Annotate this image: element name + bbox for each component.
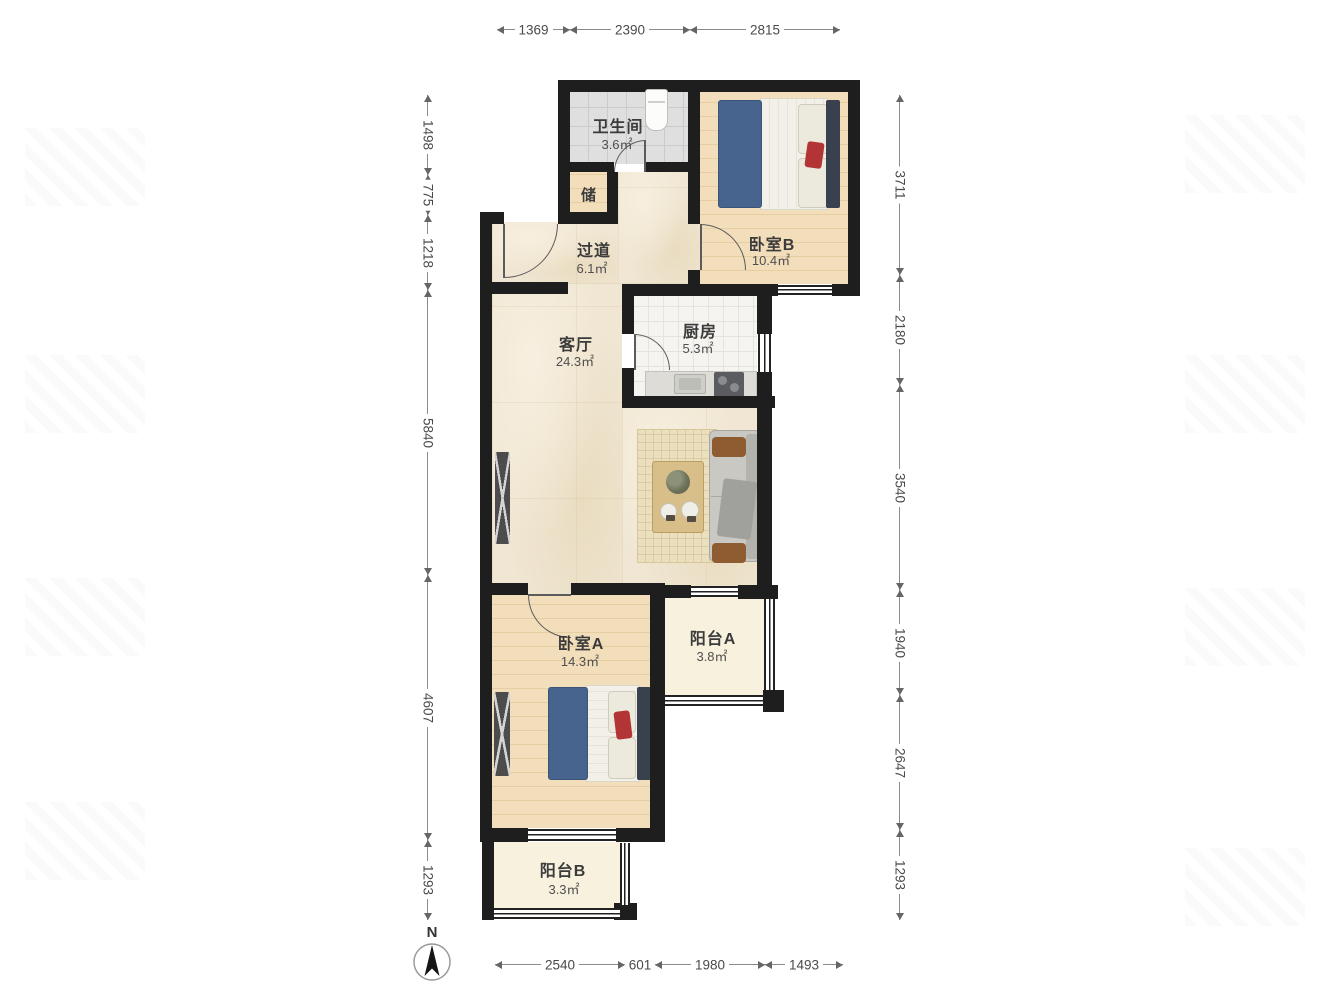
room-label-storage: 储: [581, 184, 597, 205]
room-label-balcony-b: 阳台B: [540, 857, 587, 881]
dimension-value: 1498: [421, 116, 436, 154]
wall: [650, 583, 665, 842]
wall: [558, 212, 618, 224]
window: [620, 843, 630, 905]
floor-plan: 卫生间 3.6㎡ 储 过道 6.1㎡ 卧室B 10.4㎡ 厨房 5.3㎡ 客厅 …: [0, 0, 1333, 1000]
room-area-living-room: 24.3㎡: [556, 351, 594, 370]
dimension-value: 2180: [893, 311, 908, 349]
entry-door-leaf: [503, 224, 505, 278]
dimension-bottom: 1980: [655, 959, 765, 971]
dimension-top: 2815: [690, 24, 840, 36]
wall: [622, 284, 690, 296]
bed-b-headboard: [826, 100, 840, 208]
bathroom-door-leaf: [644, 140, 646, 172]
watermark: [1185, 588, 1305, 666]
dimension-left: 4607: [422, 575, 434, 840]
wall: [757, 296, 772, 334]
stove: [714, 372, 744, 397]
room-area-balcony-b: 3.3㎡: [548, 879, 579, 898]
dimension-bottom: 1493: [765, 959, 843, 971]
room-area-bedroom-a: 14.3㎡: [561, 651, 599, 670]
wall: [688, 284, 778, 296]
window: [778, 285, 832, 295]
window: [764, 599, 775, 690]
watermark: [1185, 115, 1305, 193]
dimension-value: 4607: [421, 688, 436, 726]
wall: [622, 296, 634, 334]
watermark: [25, 355, 145, 433]
sofa-pillow: [712, 543, 746, 563]
dimension-value: 2540: [541, 958, 579, 973]
bed-a-pillow: [608, 737, 636, 779]
dimension-top: 1369: [497, 24, 570, 36]
tv-living-room: [495, 452, 510, 544]
wall: [480, 828, 528, 842]
dimension-left: 775: [422, 175, 434, 215]
bed-b-cushion: [804, 141, 824, 169]
dimension-value: 601: [625, 958, 656, 973]
wall: [558, 80, 860, 92]
dimension-value: 1293: [893, 856, 908, 894]
wall: [480, 583, 492, 842]
sofa-pillow: [712, 437, 746, 457]
window: [494, 908, 620, 919]
dimension-bottom: 2540: [495, 959, 625, 971]
wall: [757, 372, 772, 597]
table-item: [687, 516, 696, 522]
dimension-value: 1940: [893, 623, 908, 661]
north-indicator: N: [412, 942, 452, 982]
wall: [482, 842, 494, 920]
kitchen-door-leaf: [634, 334, 636, 370]
wall: [480, 212, 492, 595]
dimension-bottom: 601: [625, 959, 655, 971]
room-area-bedroom-b: 10.4㎡: [752, 250, 790, 269]
dimension-right: 3711: [894, 95, 906, 275]
bed-b-duvet: [718, 100, 762, 208]
dimension-right: 1940: [894, 590, 906, 695]
table-item: [666, 515, 675, 521]
wall: [738, 585, 778, 599]
wall: [848, 80, 860, 296]
wall: [688, 92, 700, 224]
dimension-value: 1218: [421, 233, 436, 271]
bed-a-duvet: [548, 687, 588, 780]
watermark: [25, 578, 145, 656]
sliding-door: [691, 586, 738, 597]
watermark: [1185, 848, 1305, 926]
wall: [558, 162, 614, 172]
north-label: N: [427, 924, 438, 941]
wall: [616, 828, 665, 842]
room-area-kitchen: 5.3㎡: [682, 338, 713, 357]
dimension-value: 1980: [691, 958, 729, 973]
toilet: [645, 89, 668, 131]
north-arrow-icon: [412, 942, 452, 982]
window: [758, 334, 771, 372]
dimension-left: 1498: [422, 95, 434, 175]
dimension-left: 1218: [422, 215, 434, 290]
dimension-right: 2180: [894, 275, 906, 385]
dimension-value: 1493: [785, 958, 823, 973]
wall: [622, 396, 775, 408]
dimension-value: 3711: [893, 166, 908, 203]
wall: [558, 80, 570, 222]
plant: [666, 470, 690, 494]
watermark: [25, 128, 145, 206]
dimension-left: 1293: [422, 840, 434, 920]
floor-living-room: [492, 284, 622, 595]
room-area-bathroom: 3.6㎡: [601, 134, 632, 153]
dimension-value: 2390: [611, 23, 649, 38]
sliding-door: [528, 829, 616, 841]
sink-basin: [679, 378, 701, 390]
dimension-value: 775: [421, 180, 436, 211]
toilet-tank-line: [648, 101, 665, 103]
dimension-value: 2815: [746, 23, 784, 38]
dimension-right: 3540: [894, 385, 906, 590]
stove-burner: [730, 383, 739, 392]
dimension-right: 2647: [894, 695, 906, 830]
dimension-left: 5840: [422, 290, 434, 575]
wall: [832, 284, 860, 296]
bedroom-b-door-leaf: [700, 224, 702, 270]
tv-bedroom-a: [494, 692, 510, 776]
wall: [763, 690, 784, 712]
watermark: [1185, 355, 1305, 433]
room-area-balcony-a: 3.8㎡: [696, 646, 727, 665]
sofa-throw: [717, 478, 758, 540]
bed-a-headboard: [637, 687, 651, 780]
dimension-value: 2647: [893, 743, 908, 781]
room-area-hallway: 6.1㎡: [576, 258, 607, 277]
dimension-value: 5840: [421, 413, 436, 451]
window: [665, 695, 763, 706]
bedroom-a-door-leaf: [528, 594, 571, 596]
dimension-top: 2390: [570, 24, 690, 36]
wall: [492, 282, 568, 294]
dimension-right: 1293: [894, 830, 906, 920]
dimension-value: 3540: [893, 468, 908, 506]
wall: [665, 585, 691, 598]
dimension-value: 1369: [514, 23, 552, 38]
watermark: [25, 802, 145, 880]
dimension-value: 1293: [421, 861, 436, 899]
stove-burner: [718, 376, 727, 385]
bed-a-cushion: [613, 710, 632, 740]
